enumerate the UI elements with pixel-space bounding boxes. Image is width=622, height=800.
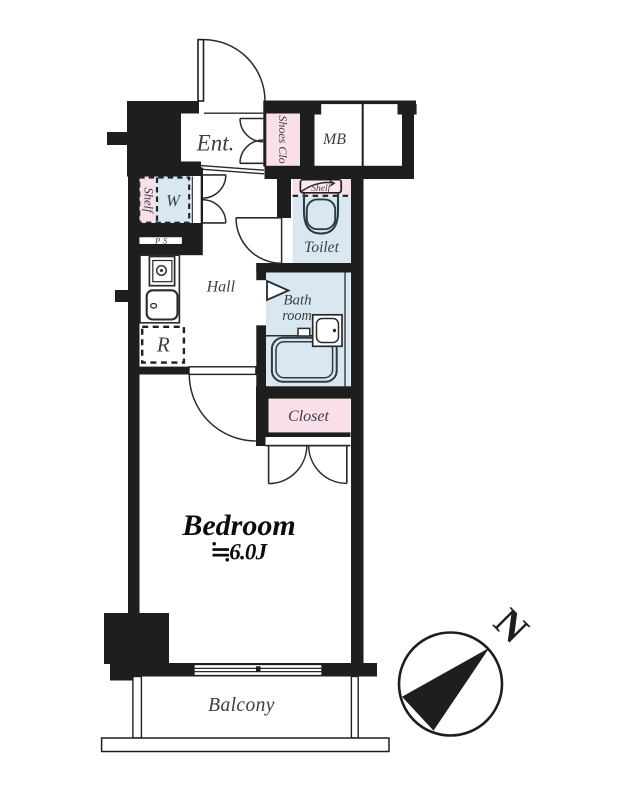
svg-text:Hall: Hall <box>206 279 236 296</box>
svg-text:Closet: Closet <box>288 408 329 425</box>
svg-text:Shelf: Shelf <box>311 183 331 194</box>
svg-text:W: W <box>166 191 181 210</box>
svg-text:Ent.: Ent. <box>196 131 235 156</box>
svg-text:MB: MB <box>322 131 346 148</box>
svg-text:R: R <box>156 333 170 357</box>
svg-text:Shelf: Shelf <box>142 188 156 215</box>
svg-text:Balcony: Balcony <box>208 695 275 716</box>
svg-text:6.0J: 6.0J <box>229 540 268 565</box>
svg-text:Bedroom: Bedroom <box>181 509 295 542</box>
svg-text:PS: PS <box>154 235 170 245</box>
svg-text:Shoes Clo: Shoes Clo <box>276 115 290 163</box>
svg-text:Bath: Bath <box>283 293 311 309</box>
svg-text:room: room <box>282 308 311 324</box>
svg-text:N: N <box>485 599 537 651</box>
svg-text:Toilet: Toilet <box>304 239 339 256</box>
